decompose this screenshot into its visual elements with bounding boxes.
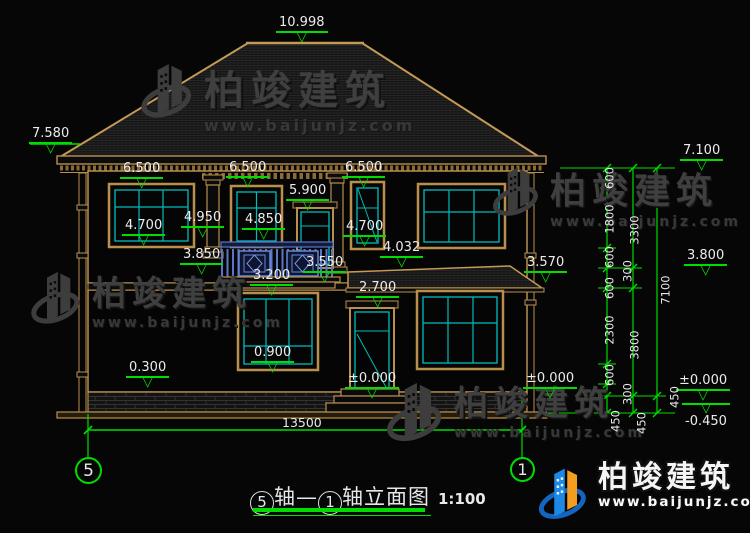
elevation-marker-icon: ▽ bbox=[286, 200, 329, 211]
elevation-eave-right: 7.100▽ bbox=[680, 144, 723, 171]
height-dim-300-1: 300 bbox=[622, 260, 634, 282]
elevation-ground-wall: ±0.000▽ bbox=[523, 372, 577, 399]
title-tail: 轴立面图 bbox=[342, 485, 430, 509]
watermark-url: www.baijunjz.com bbox=[204, 116, 415, 135]
elevation-marker-icon: ▽ bbox=[122, 235, 165, 246]
elevation-marker-icon: ▽ bbox=[226, 177, 269, 188]
elevation-door1-top: 2.700▽ bbox=[356, 281, 399, 308]
height-dim-7100: 7100 bbox=[660, 275, 672, 304]
elevation-marker-icon: ▽ bbox=[523, 388, 577, 399]
elevation-marker-icon: ▽ bbox=[250, 285, 293, 296]
watermark-top: 柏竣建筑 www.baijunjz.com bbox=[140, 58, 415, 135]
elevation-marker-icon: ▽ bbox=[380, 257, 423, 268]
elevation-marker-icon: ▽ bbox=[180, 264, 223, 275]
watermark-left: 柏竣建筑 www.baijunjz.com bbox=[30, 266, 283, 331]
elevation-lintel2-c: 6.500▽ bbox=[342, 161, 385, 188]
elevation-marker-icon: ▽ bbox=[303, 272, 346, 283]
elevation-marker-icon: ▽ bbox=[242, 229, 285, 240]
height-dim-300-2: 300 bbox=[622, 383, 634, 405]
elevation-sill1: 0.900▽ bbox=[251, 346, 294, 373]
elevation-canopy-right: 3.570▽ bbox=[524, 256, 567, 283]
title-mid: 轴— bbox=[274, 485, 318, 509]
elevation-balcony-top: 3.550▽ bbox=[303, 256, 346, 283]
elevation-marker-icon: ▽ bbox=[126, 377, 169, 388]
elevation-ground-chain: ±0.000▽ bbox=[676, 374, 730, 401]
elevation-basement: ▽-0.450 bbox=[682, 403, 730, 430]
elevation-drawing-canvas: 柏竣建筑 www.baijunjz.com 柏竣建筑 www.baijunjz.… bbox=[0, 0, 750, 533]
elevation-sill2-a: 4.700▽ bbox=[122, 219, 165, 246]
elevation-ground-door: ±0.000▽ bbox=[345, 372, 399, 399]
elevation-marker-icon: ▽ bbox=[682, 403, 730, 414]
baijun-logo-icon bbox=[140, 58, 196, 120]
watermark-bottom: 柏竣建筑 www.baijunjz.com bbox=[386, 376, 645, 444]
footer-url-text: www.baijunjz.com bbox=[598, 494, 750, 510]
elevation-marker-icon: ▽ bbox=[524, 272, 567, 283]
elevation-lintel2-a: 6.500▽ bbox=[120, 162, 163, 189]
footer-brand-text: 柏竣建筑 bbox=[598, 462, 750, 494]
elevation-marker-icon: ▽ bbox=[342, 177, 385, 188]
elevation-marker-icon: ▽ bbox=[181, 227, 224, 238]
height-dim-600-1: 600 bbox=[604, 167, 616, 189]
elevation-marker-icon: ▽ bbox=[684, 265, 727, 276]
watermark-url: www.baijunjz.com bbox=[550, 214, 741, 230]
elevation-marker-icon: ▽ bbox=[251, 362, 294, 373]
title-underline-thick bbox=[253, 508, 425, 512]
height-dim-3800: 3800 bbox=[629, 330, 641, 359]
elevation-balcony-door-top: 5.900▽ bbox=[286, 184, 329, 211]
width-dim-total: 13500 bbox=[282, 417, 322, 430]
baijun-logo-color-icon bbox=[538, 462, 590, 522]
watermark-url: www.baijunjz.com bbox=[92, 315, 283, 331]
height-dim-2300: 2300 bbox=[604, 315, 616, 344]
height-dim-450-3: 450 bbox=[669, 386, 681, 408]
elevation-balcony-floor: 3.200▽ bbox=[250, 269, 293, 296]
height-dim-3300: 3300 bbox=[629, 215, 641, 244]
elevation-marker-icon: ▽ bbox=[676, 390, 730, 401]
elevation-marker-icon: ▽ bbox=[29, 143, 72, 154]
title-scale: 1:100 bbox=[438, 490, 486, 508]
elevation-lintel2-b: 6.500▽ bbox=[226, 161, 269, 188]
window-1f-right bbox=[417, 291, 503, 369]
elevation-marker-icon: ▽ bbox=[356, 297, 399, 308]
elevation-sill2-b: 4.850▽ bbox=[242, 213, 285, 240]
elevation-ridge: 10.998▽ bbox=[276, 16, 328, 43]
height-dim-1800: 1800 bbox=[604, 204, 616, 233]
height-dim-600-3: 600 bbox=[604, 277, 616, 299]
height-dim-600-2: 600 bbox=[604, 246, 616, 268]
elevation-canopy-left: 4.032▽ bbox=[380, 241, 423, 268]
watermark-brand: 柏竣建筑 bbox=[204, 58, 415, 116]
elevation-plinth: 0.300▽ bbox=[126, 361, 169, 388]
axis-bubble-1: 1 bbox=[510, 457, 535, 482]
height-dim-450-2: 450 bbox=[636, 412, 648, 434]
elevation-rail-top: 3.850▽ bbox=[180, 248, 223, 275]
elevation-marker-icon: ▽ bbox=[345, 388, 399, 399]
footer-brand-logo: 柏竣建筑 www.baijunjz.com bbox=[538, 462, 750, 522]
title-underline-thin bbox=[253, 515, 431, 516]
elevation-mid2: 4.950▽ bbox=[181, 211, 224, 238]
elevation-right-mid: 3.800▽ bbox=[684, 249, 727, 276]
axis-bubble-5: 5 bbox=[75, 457, 102, 484]
elevation-marker-icon: ▽ bbox=[680, 160, 723, 171]
baijun-logo-icon bbox=[30, 266, 84, 326]
elevation-marker-icon: ▽ bbox=[120, 178, 163, 189]
height-dim-450-1: 450 bbox=[610, 410, 622, 432]
elevation-eave-left: 7.580▽ bbox=[29, 127, 72, 154]
baijun-logo-icon bbox=[492, 162, 542, 218]
height-dim-600-4: 600 bbox=[604, 364, 616, 386]
elevation-marker-icon: ▽ bbox=[276, 32, 328, 43]
